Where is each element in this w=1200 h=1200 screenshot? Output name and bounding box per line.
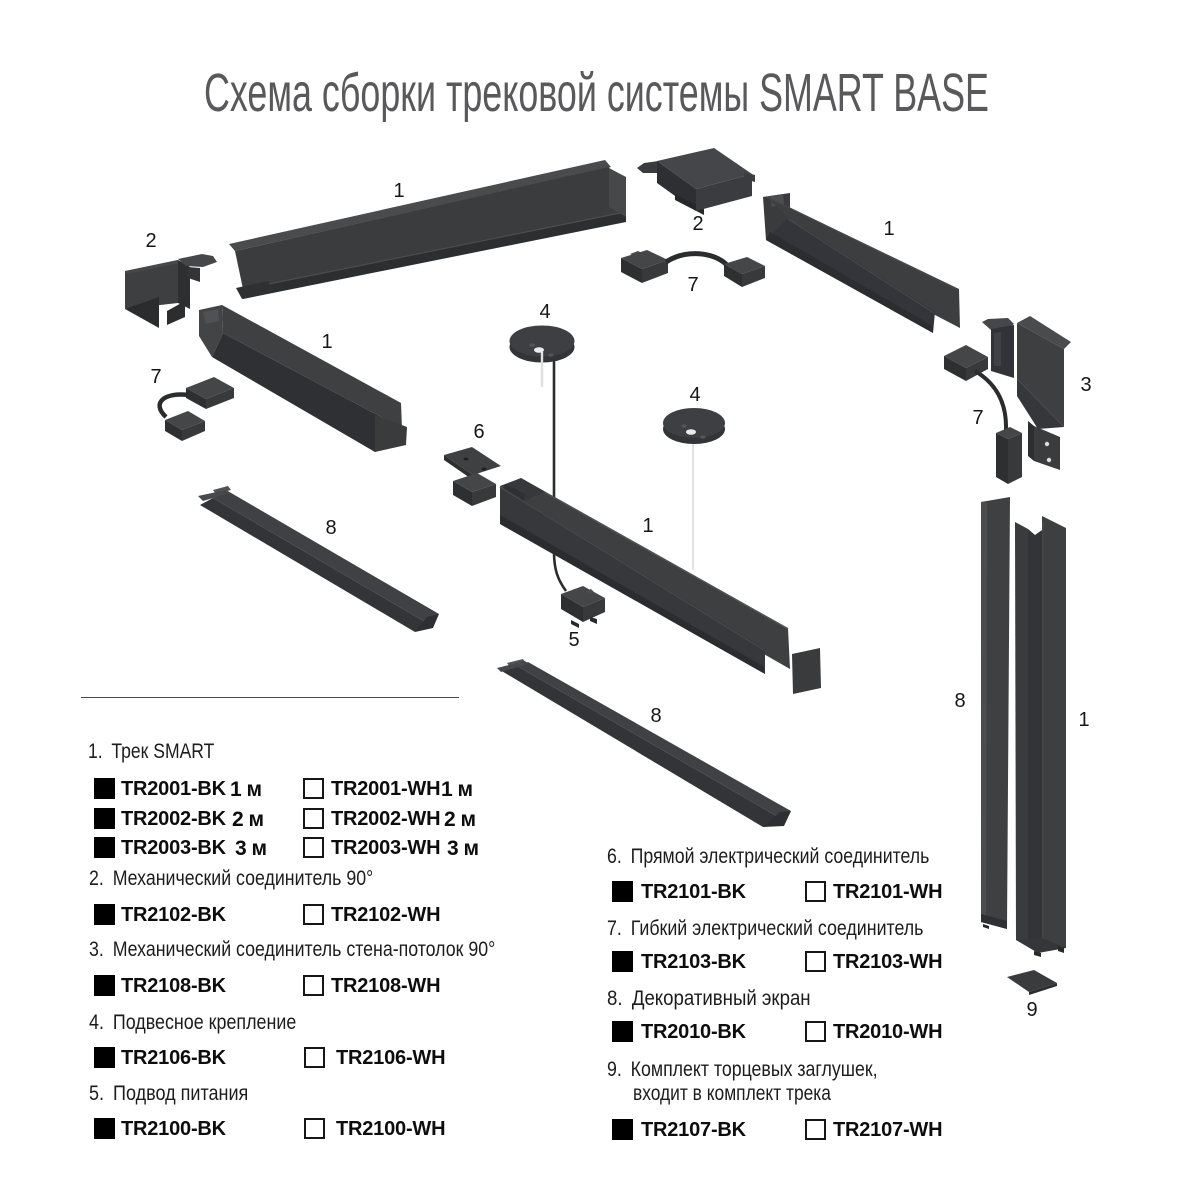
svg-text:1: 1 xyxy=(321,331,332,353)
svg-text:5: 5 xyxy=(568,629,579,651)
svg-text:1: 1 xyxy=(883,218,894,240)
svg-text:8: 8 xyxy=(954,690,965,712)
svg-text:7: 7 xyxy=(150,366,161,388)
svg-text:8: 8 xyxy=(325,517,336,539)
svg-text:1: 1 xyxy=(642,515,653,537)
svg-text:3: 3 xyxy=(1080,374,1091,396)
svg-text:4: 4 xyxy=(539,301,550,323)
svg-text:1: 1 xyxy=(393,180,404,202)
svg-text:7: 7 xyxy=(972,407,983,429)
svg-text:1: 1 xyxy=(1078,709,1089,731)
svg-text:4: 4 xyxy=(689,384,700,406)
svg-text:8: 8 xyxy=(650,705,661,727)
svg-text:2: 2 xyxy=(145,230,156,252)
svg-text:6: 6 xyxy=(473,421,484,443)
svg-text:7: 7 xyxy=(687,274,698,296)
svg-text:2: 2 xyxy=(692,213,703,235)
svg-text:9: 9 xyxy=(1026,999,1037,1021)
